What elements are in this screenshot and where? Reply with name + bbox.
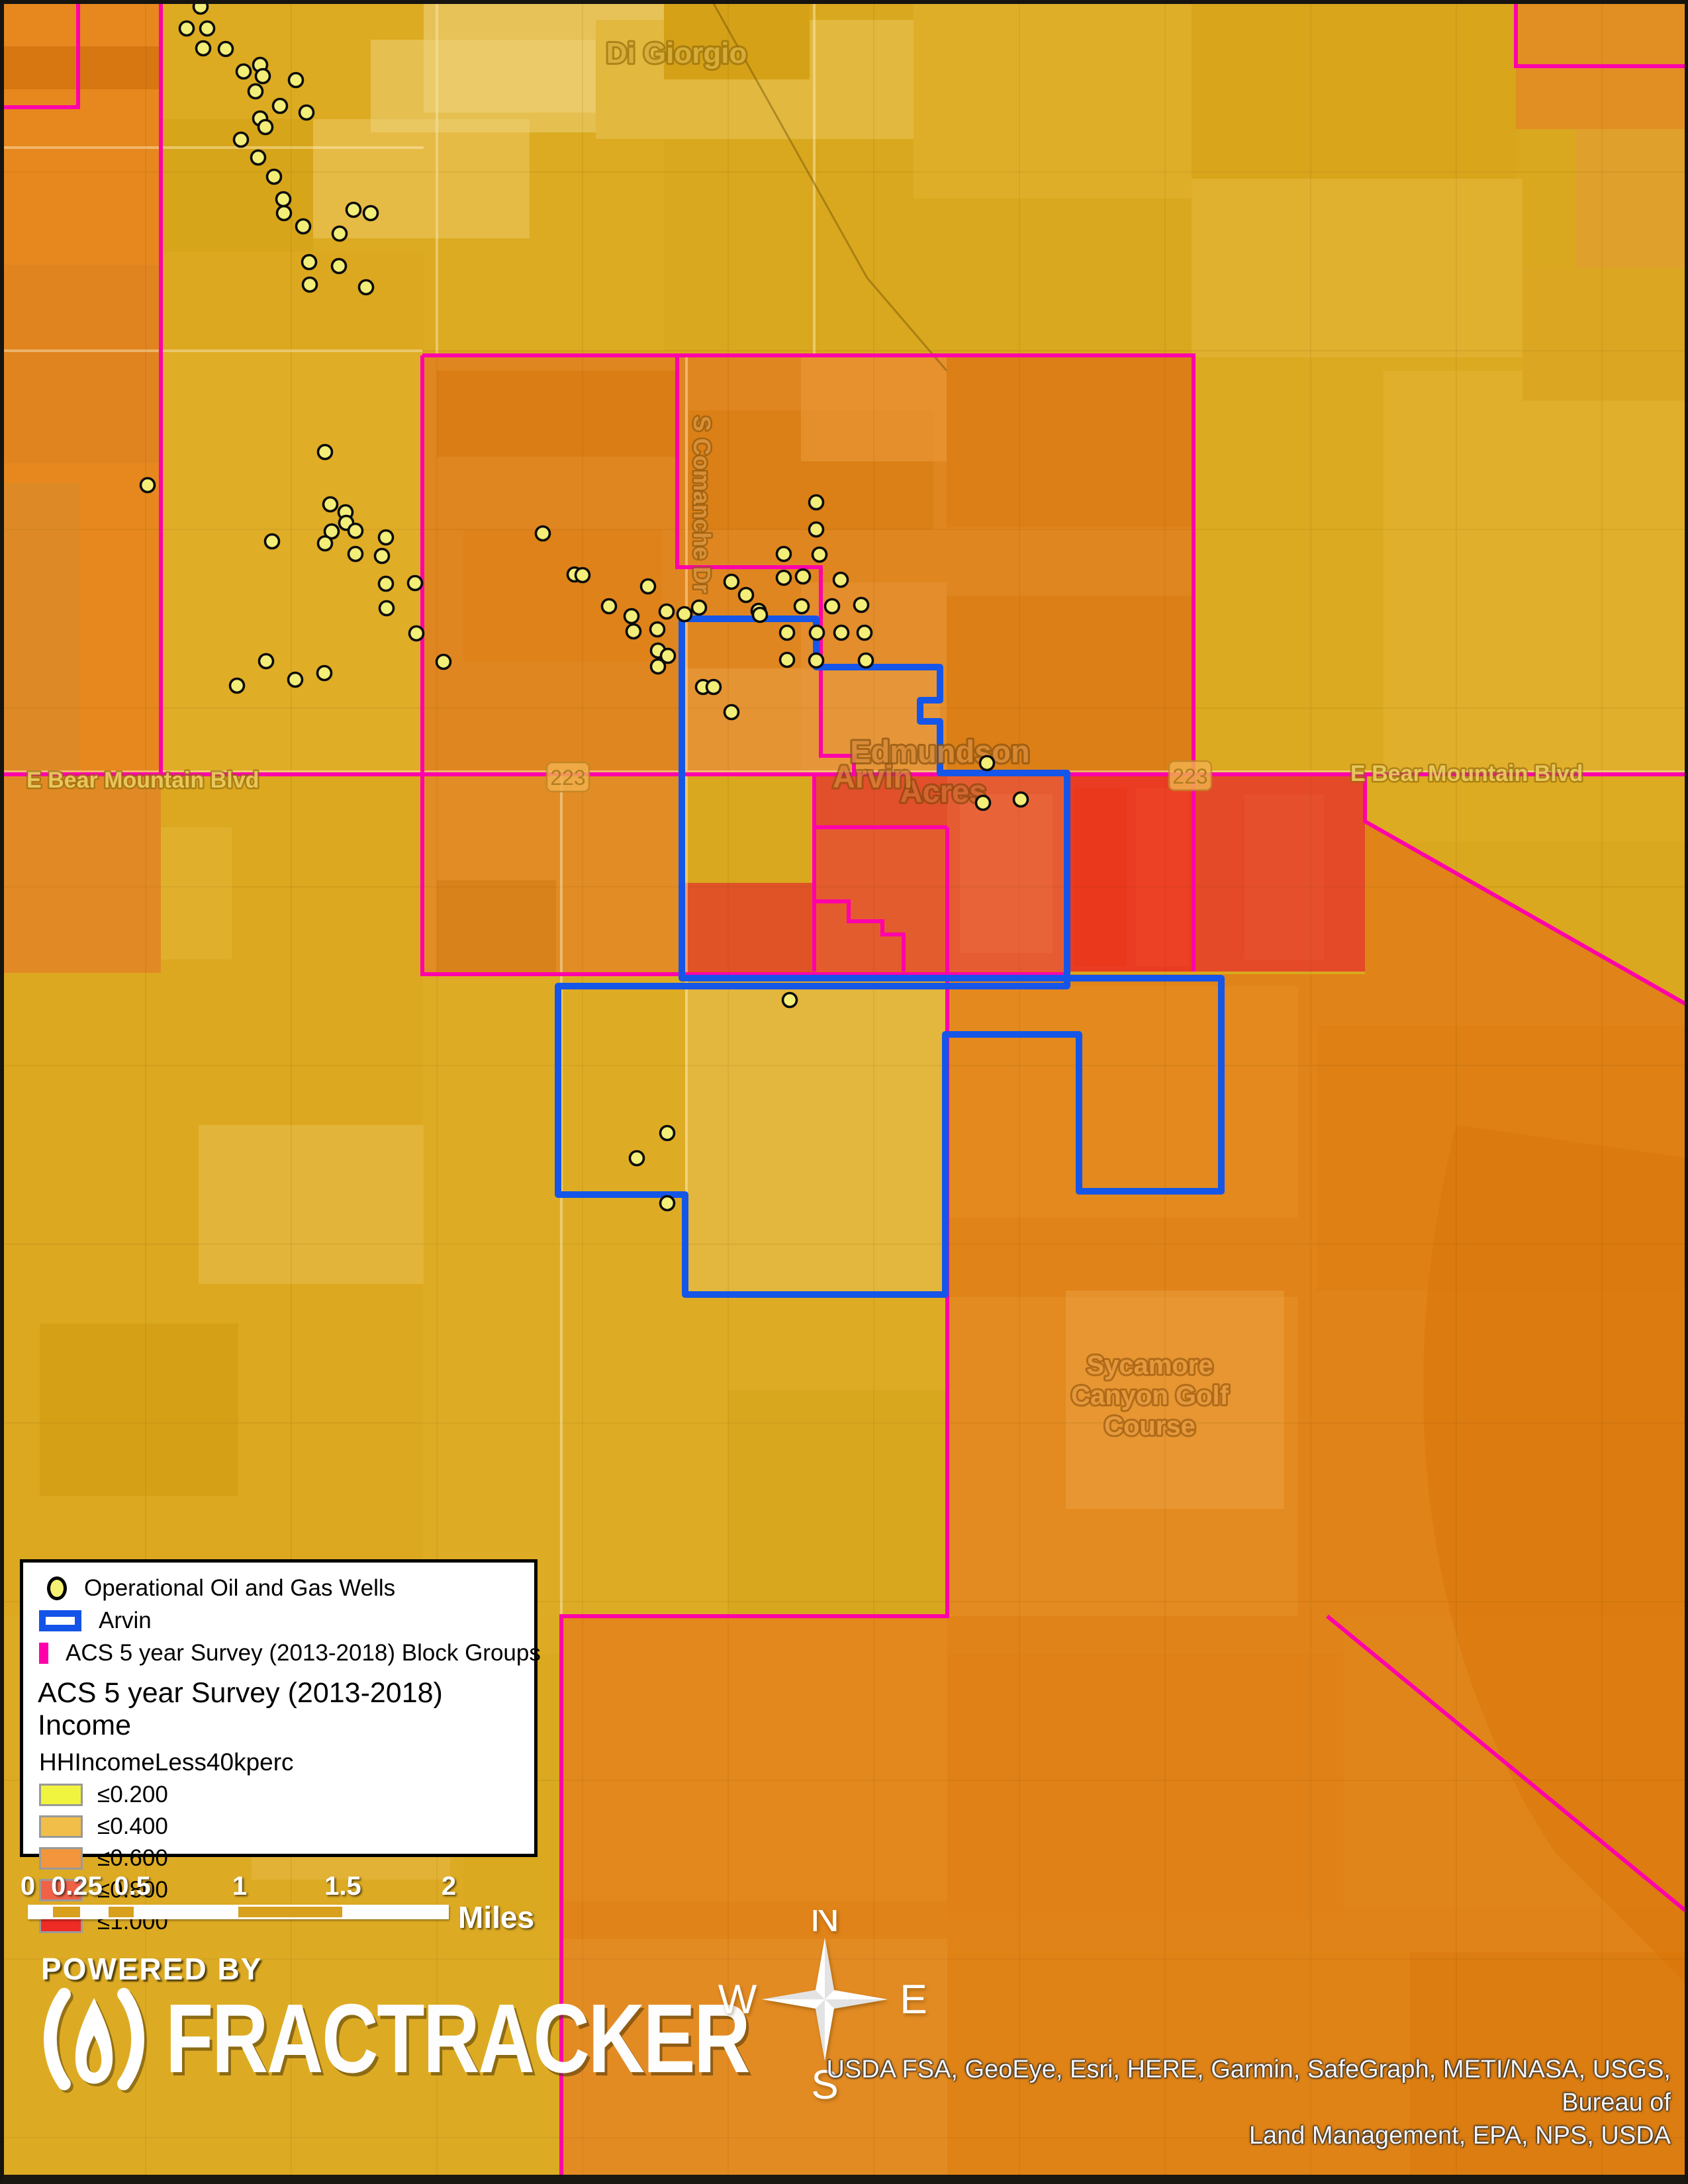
compass-e: E [900,1977,927,2023]
well-point[interactable] [408,576,422,590]
well-point[interactable] [259,120,273,134]
fractracker-wordmark: FRACTRACKER [165,1990,749,2088]
well-point[interactable] [651,660,665,674]
well-point[interactable] [536,527,550,541]
powered-by-label: POWERED BY [41,1951,262,1987]
scale-tick-0: 0 [21,1872,35,1901]
well-point[interactable] [252,151,265,165]
well-point[interactable] [318,666,332,680]
route-shield-223-east: 223 [1169,761,1211,790]
well-point[interactable] [627,625,641,639]
well-point[interactable] [234,133,248,147]
well-point[interactable] [858,626,872,640]
route-223-label: 223 [1172,764,1207,788]
well-point[interactable] [834,573,848,587]
legend-class-row: ≤0.200 [39,1782,534,1808]
well-point[interactable] [753,608,767,622]
well-point[interactable] [1014,793,1028,807]
well-point[interactable] [277,206,291,220]
well-point[interactable] [410,627,424,641]
class-swatch-0400 [39,1815,83,1838]
legend-field-name: HHIncomeLess40kperc [39,1749,534,1776]
compass-star [762,1938,888,2061]
well-point[interactable] [810,654,823,668]
attribution-line-1: USDA FSA, GeoEye, Esri, HERE, Garmin, Sa… [744,2053,1671,2119]
class-swatch-0600 [39,1847,83,1870]
well-point[interactable] [437,655,451,669]
well-point[interactable] [237,65,251,79]
place-label-golf-1: Sycamore [1086,1351,1213,1380]
well-point[interactable] [300,106,314,120]
well-point[interactable] [780,653,794,667]
attribution-line-2: Land Management, EPA, NPS, USDA [744,2119,1671,2152]
well-point[interactable] [249,85,263,99]
place-label-arvin: Arvin [833,759,912,794]
well-point[interactable] [256,69,270,83]
place-label-edmundson-acres: Acres [900,774,987,809]
scale-tick-1: 1 [232,1872,247,1901]
well-point[interactable] [265,535,279,549]
well-point[interactable] [347,203,361,217]
well-point[interactable] [630,1152,644,1165]
compass-w: W [718,1977,757,2023]
class-label-0200: ≤0.200 [97,1782,168,1808]
class-swatch-0200 [39,1784,83,1806]
well-point[interactable] [303,278,317,292]
scale-tick-05: 0.5 [114,1872,151,1901]
well-point[interactable] [777,571,791,585]
well-point[interactable] [810,626,824,640]
well-point[interactable] [201,22,214,36]
route-shield-223-west: 223 [547,762,589,792]
well-point[interactable] [379,531,393,545]
well-point[interactable] [230,679,244,693]
well-point[interactable] [375,549,389,563]
attribution: USDA FSA, GeoEye, Esri, HERE, Garmin, Sa… [744,2053,1671,2152]
well-point[interactable] [141,478,155,492]
well-point[interactable] [780,626,794,640]
route-223-label: 223 [550,766,585,790]
well-point[interactable] [349,547,363,561]
legend-row-wells: Operational Oil and Gas Wells [39,1575,534,1602]
well-point[interactable] [379,577,393,591]
well-point[interactable] [777,547,791,561]
well-point[interactable] [297,220,310,234]
legend-wells-label: Operational Oil and Gas Wells [84,1575,395,1602]
well-point[interactable] [660,605,674,619]
well-point[interactable] [324,498,338,512]
well-point[interactable] [303,255,316,269]
scale-tick-2: 2 [442,1872,456,1901]
map-document: 223 223 Di Giorgio E Bear Mountain Blvd … [0,0,1688,2184]
well-point[interactable] [810,496,823,510]
road-label-bear-mountain-east: E Bear Mountain Blvd [1350,761,1583,786]
well-point[interactable] [976,796,990,810]
legend-class-row: ≤0.600 [39,1845,534,1872]
well-point[interactable] [855,598,868,612]
well-point[interactable] [661,1197,675,1210]
well-point[interactable] [333,227,347,241]
well-point[interactable] [364,206,378,220]
well-point[interactable] [194,0,208,14]
well-point[interactable] [219,42,233,56]
well-point[interactable] [197,42,211,56]
well-point[interactable] [602,600,616,614]
scale-tick-15: 1.5 [324,1872,361,1901]
well-point[interactable] [289,73,303,87]
well-point[interactable] [332,259,346,273]
well-point[interactable] [783,993,797,1007]
well-point[interactable] [273,99,287,113]
well-point[interactable] [678,608,692,621]
well-point[interactable] [859,654,873,668]
legend-income-header: ACS 5 year Survey (2013-2018) Income [38,1677,534,1742]
legend-row-arvin: Arvin [39,1608,534,1634]
well-point[interactable] [289,673,303,687]
well-point[interactable] [725,705,739,719]
legend-block-groups-label: ACS 5 year Survey (2013-2018) Block Grou… [66,1640,541,1666]
legend-row-block-groups: ACS 5 year Survey (2013-2018) Block Grou… [39,1640,534,1666]
legend-arvin-label: Arvin [99,1608,152,1634]
legend-class-row: ≤0.400 [39,1813,534,1840]
well-point[interactable] [835,626,849,640]
well-point[interactable] [641,580,655,594]
well-marker-icon [47,1576,67,1600]
well-point[interactable] [825,600,839,614]
well-point[interactable] [318,537,332,551]
well-point[interactable] [725,575,739,589]
place-label-golf-3: Course [1104,1412,1196,1441]
scale-tick-025: 0.25 [51,1872,103,1901]
class-label-0400: ≤0.400 [97,1813,168,1840]
well-point[interactable] [277,193,291,206]
well-point[interactable] [661,1126,675,1140]
block-groups-swatch [39,1643,48,1664]
well-point[interactable] [739,588,753,602]
well-point[interactable] [359,281,373,295]
scale-bar-unit: Miles [458,1899,534,1935]
flame-icon [34,1987,154,2091]
well-point[interactable] [796,570,810,584]
place-label-di-giorgio: Di Giorgio [606,37,747,69]
well-point[interactable] [380,602,394,615]
well-point[interactable] [692,601,706,615]
road-label-comanche-dr: S Comanche Dr [688,416,716,593]
well-point[interactable] [980,756,994,770]
scale-bar-rule [28,1905,449,1919]
road-label-bear-mountain-west: E Bear Mountain Blvd [26,768,259,793]
well-point[interactable] [267,170,281,184]
well-point[interactable] [810,523,823,537]
well-point[interactable] [576,569,590,582]
well-point[interactable] [813,548,827,562]
legend-panel: Operational Oil and Gas Wells Arvin ACS … [20,1559,538,1857]
well-point[interactable] [707,680,721,694]
well-point[interactable] [795,600,809,614]
well-point[interactable] [625,610,639,623]
well-point[interactable] [259,655,273,668]
well-point[interactable] [180,22,194,36]
well-point[interactable] [349,524,363,538]
place-label-golf-2: Canyon Golf [1071,1381,1229,1410]
class-label-0600: ≤0.600 [97,1845,168,1872]
arvin-boundary-swatch [39,1610,81,1631]
well-point[interactable] [651,623,665,637]
compass-n: N [810,1910,840,1940]
well-point[interactable] [318,445,332,459]
scale-bar: 0 0.25 0.5 1 1.5 2 Miles [19,1872,601,1931]
